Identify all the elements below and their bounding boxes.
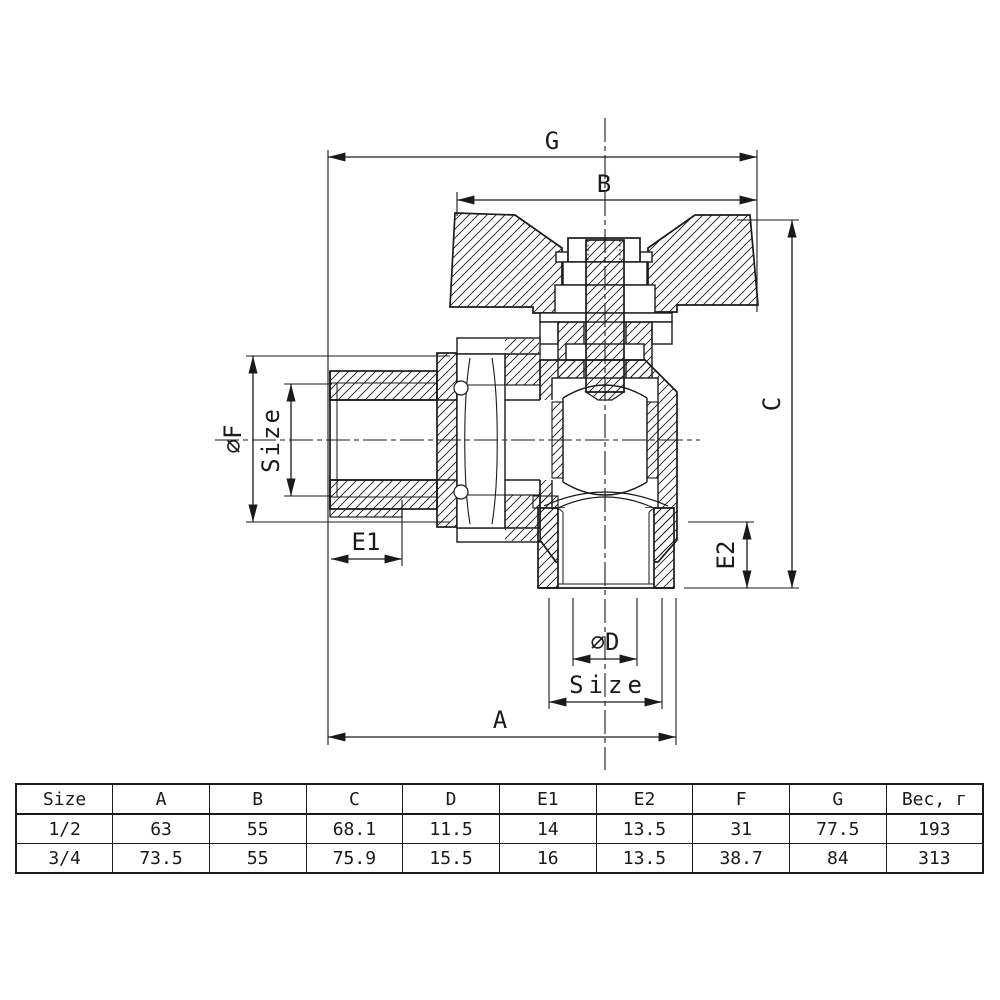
table-cell: 68.1 (306, 814, 403, 844)
table-cell: 15.5 (403, 844, 500, 874)
seal-ball-top (454, 381, 468, 395)
dim-label-c: C (758, 397, 786, 411)
table-cell: 31 (693, 814, 790, 844)
table-header-cell: E2 (596, 784, 693, 814)
valve-technical-drawing: G B C A E1 E2 ∅D Size ∅F Size (0, 0, 1000, 770)
seal-ball-bottom (454, 485, 468, 499)
table-cell: 14 (499, 814, 596, 844)
table-cell: 77.5 (790, 814, 887, 844)
dim-label-g: G (545, 127, 559, 155)
table-cell: 55 (209, 844, 306, 874)
table-cell: 1/2 (16, 814, 113, 844)
dim-label-phi-f: ∅F (219, 425, 247, 454)
table-cell: 16 (499, 844, 596, 874)
table-cell: 3/4 (16, 844, 113, 874)
table-cell: 75.9 (306, 844, 403, 874)
dim-label-size-bottom: Size (569, 671, 647, 699)
table-cell: 193 (886, 814, 983, 844)
dim-label-a: A (493, 706, 508, 734)
table-row: 1/2 63 55 68.1 11.5 14 13.5 31 77.5 193 (16, 814, 983, 844)
table-row: 3/4 73.5 55 75.9 15.5 16 13.5 38.7 84 31… (16, 844, 983, 874)
table-cell: 313 (886, 844, 983, 874)
table-header-row: Size A B C D E1 E2 F G Вес, г (16, 784, 983, 814)
table-cell: 63 (113, 814, 210, 844)
dim-label-phi-d: ∅D (591, 628, 620, 656)
table-header-cell: E1 (499, 784, 596, 814)
drawing-page: G B C A E1 E2 ∅D Size ∅F Size Size A B C… (0, 0, 1000, 1000)
table-cell: 13.5 (596, 844, 693, 874)
dim-label-size-left: Size (257, 407, 285, 473)
table-header-cell: C (306, 784, 403, 814)
table-header-cell: F (693, 784, 790, 814)
table-header-cell: Size (16, 784, 113, 814)
table-cell: 11.5 (403, 814, 500, 844)
table-header-cell: A (113, 784, 210, 814)
table-header-cell: D (403, 784, 500, 814)
table-cell: 55 (209, 814, 306, 844)
table-cell: 13.5 (596, 814, 693, 844)
dim-label-e1: E1 (352, 528, 381, 556)
valve-part (330, 213, 758, 588)
dim-label-e2: E2 (712, 541, 740, 570)
table-cell: 73.5 (113, 844, 210, 874)
table-header-cell: G (790, 784, 887, 814)
dimensions-table: Size A B C D E1 E2 F G Вес, г 1/2 63 55 … (15, 783, 984, 874)
table-header-cell: B (209, 784, 306, 814)
table-cell: 84 (790, 844, 887, 874)
table-header-cell: Вес, г (886, 784, 983, 814)
table-cell: 38.7 (693, 844, 790, 874)
dim-label-b: B (597, 170, 611, 198)
